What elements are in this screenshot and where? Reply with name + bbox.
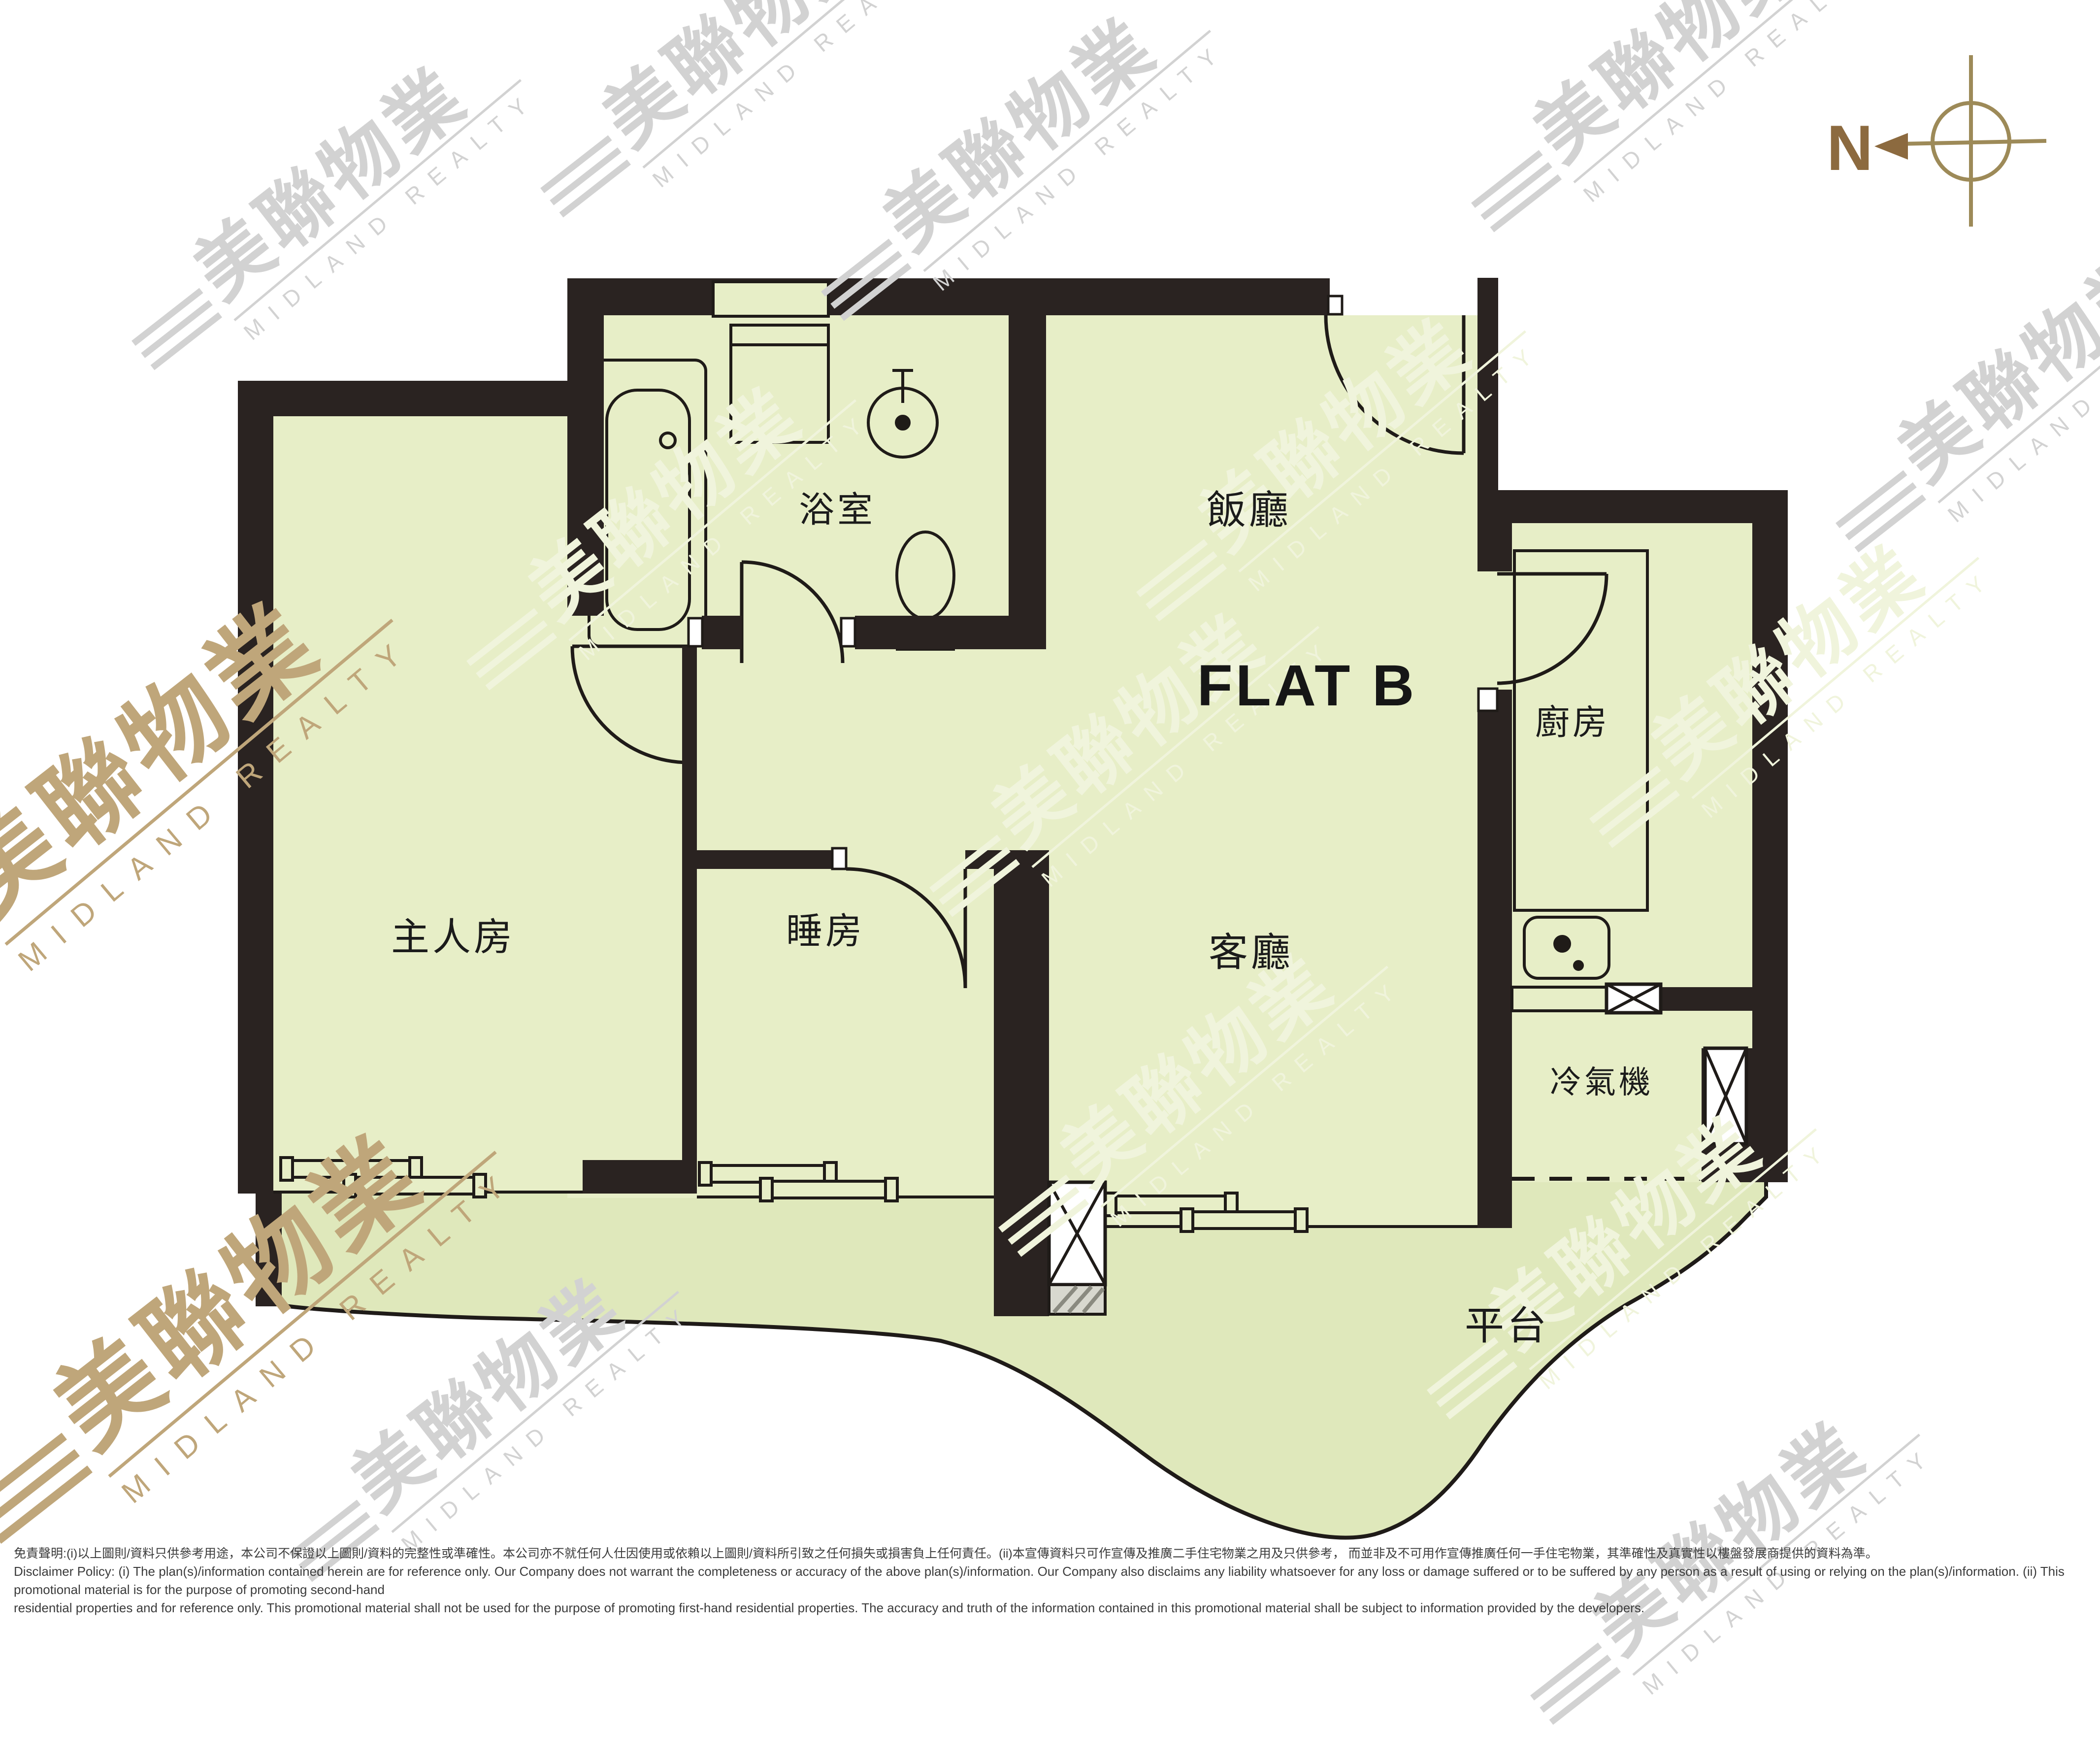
kitchen-window — [1512, 987, 1607, 1011]
disclaimer-line-en1: Disclaimer Policy: (i) The plan(s)/infor… — [14, 1562, 2092, 1599]
north-arrow — [1874, 133, 1908, 160]
column-hatch — [1049, 1285, 1105, 1314]
room-label-bathroom: 浴室 — [799, 481, 876, 532]
compass: N — [1827, 55, 2046, 227]
room-label-bedroom: 睡房 — [786, 902, 865, 955]
compass-horizontal-line — [1902, 141, 2046, 144]
room-label-kitchen: 廚房 — [1535, 695, 1610, 745]
room-label-ac: 冷氣機 — [1550, 1057, 1653, 1102]
bathroom-window — [713, 282, 828, 316]
midland-logo-icon: ≡≡ — [1510, 1624, 1633, 1747]
disclaimer-line-en2: residential properties and for reference… — [14, 1599, 2092, 1617]
disclaimer-line-zh: 免責聲明:(i)以上圖則/資料只供參考用途，本公司不保證以上圖則/資料的完整性或… — [14, 1545, 2092, 1562]
north-label: N — [1827, 112, 1873, 184]
room-label-dining: 飯廳 — [1207, 478, 1291, 535]
flat-title: FLAT B — [1197, 652, 1417, 719]
floor-plan-drawing: N — [0, 0, 2100, 1601]
room-label-terrace: 平台 — [1465, 1294, 1549, 1351]
floor-plan-page: N ≡≡美聯物業MIDLAND REALTY ≡≡美聯物業MIDLAND REA… — [0, 0, 2100, 1601]
room-label-master: 主人房 — [391, 906, 515, 962]
disclaimer-block: 免責聲明:(i)以上圖則/資料只供參考用途，本公司不保證以上圖則/資料的完整性或… — [14, 1545, 2092, 1617]
room-label-living: 客廳 — [1209, 921, 1293, 978]
